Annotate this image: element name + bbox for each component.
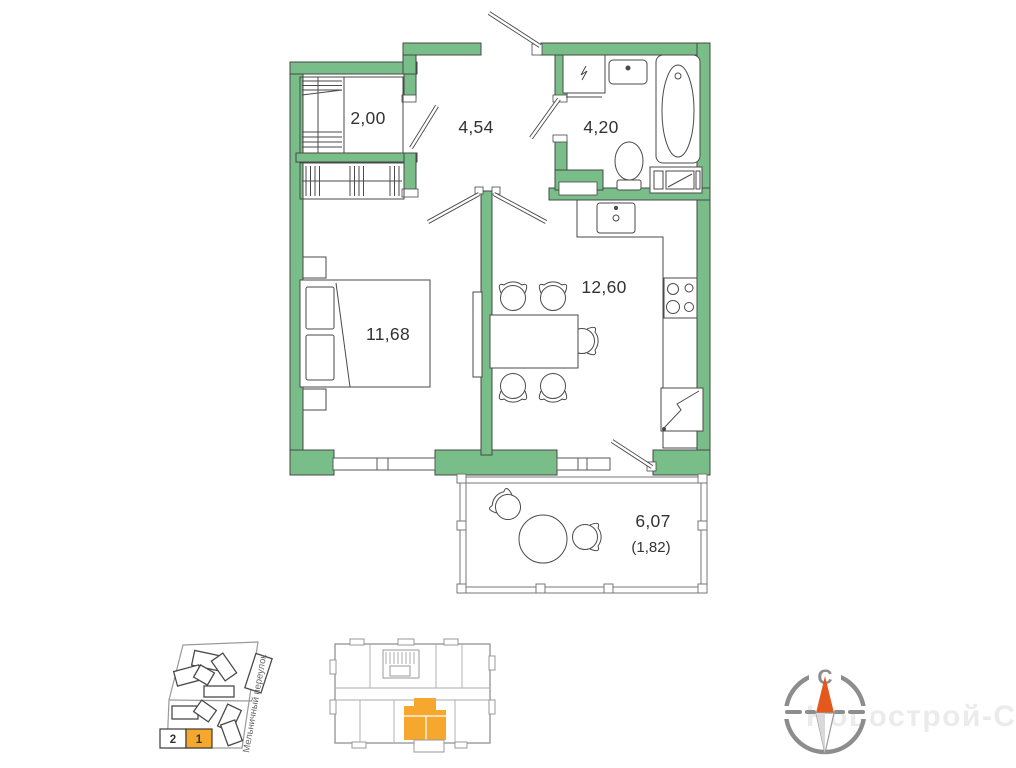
building-badge: 2 1 bbox=[160, 729, 212, 748]
duct-inset bbox=[559, 182, 597, 195]
kitchen-fixtures bbox=[577, 200, 703, 448]
wall-wardrobe-right bbox=[404, 153, 416, 191]
wall-storage-top bbox=[290, 62, 417, 74]
stair-core bbox=[383, 650, 419, 678]
nightstand-top bbox=[303, 257, 326, 278]
wall-storage-bottom bbox=[296, 153, 417, 162]
compass: С bbox=[779, 666, 871, 753]
wall-storage-right bbox=[404, 74, 416, 98]
tv bbox=[473, 292, 482, 377]
dining-table bbox=[490, 315, 578, 368]
hallway-area-label: 4,54 bbox=[458, 117, 493, 137]
badge-2-label: 2 bbox=[170, 734, 176, 746]
bathtub bbox=[656, 55, 700, 163]
balcony-area-label: 6,07 bbox=[635, 511, 670, 531]
bedroom-area-label: 11,68 bbox=[366, 324, 410, 344]
unit-balcony-stub bbox=[414, 740, 444, 752]
floor-plan-drawing: Новострой-СПб bbox=[0, 0, 1016, 768]
bedroom-window-mullion bbox=[377, 458, 388, 470]
floor-overview bbox=[330, 639, 495, 752]
wardrobe bbox=[300, 163, 404, 199]
bath-sink bbox=[609, 60, 647, 84]
washing-machine bbox=[563, 55, 605, 93]
storage-area-label: 2,00 bbox=[350, 108, 385, 128]
wall-left bbox=[290, 62, 303, 475]
kitchen-window-mullion bbox=[578, 458, 587, 470]
apartment-plan: 2,00 4,54 4,20 11,68 12,60 6,07 (1,82) bbox=[290, 13, 710, 593]
wall-bottom-left bbox=[290, 450, 334, 475]
wall-bottom-middle bbox=[435, 450, 557, 475]
pillow-top bbox=[306, 287, 334, 329]
floor-plan-page: Новострой-СПб bbox=[0, 0, 1016, 768]
wall-top-left-of-entry bbox=[403, 43, 481, 55]
pillow-bottom bbox=[306, 335, 334, 380]
wall-bottom-right bbox=[653, 450, 710, 475]
watermark-text: Новострой-СПб bbox=[806, 700, 1016, 733]
toilet-bowl bbox=[615, 142, 643, 180]
bathroom-area-label: 4,20 bbox=[583, 117, 618, 137]
wall-top-right-of-entry bbox=[541, 43, 710, 55]
kitchen-area-label: 12,60 bbox=[581, 277, 626, 297]
balcony-coeff-label: (1,82) bbox=[631, 539, 670, 556]
site-plan: Мельничный переулок 2 1 bbox=[160, 642, 272, 754]
dining-set bbox=[490, 282, 598, 402]
wall-caps bbox=[402, 44, 656, 471]
nightstand-bottom bbox=[303, 389, 326, 410]
balcony-table bbox=[519, 515, 567, 563]
toilet-base bbox=[617, 180, 641, 190]
badge-1-label: 1 bbox=[196, 734, 203, 746]
balcony bbox=[457, 474, 707, 593]
